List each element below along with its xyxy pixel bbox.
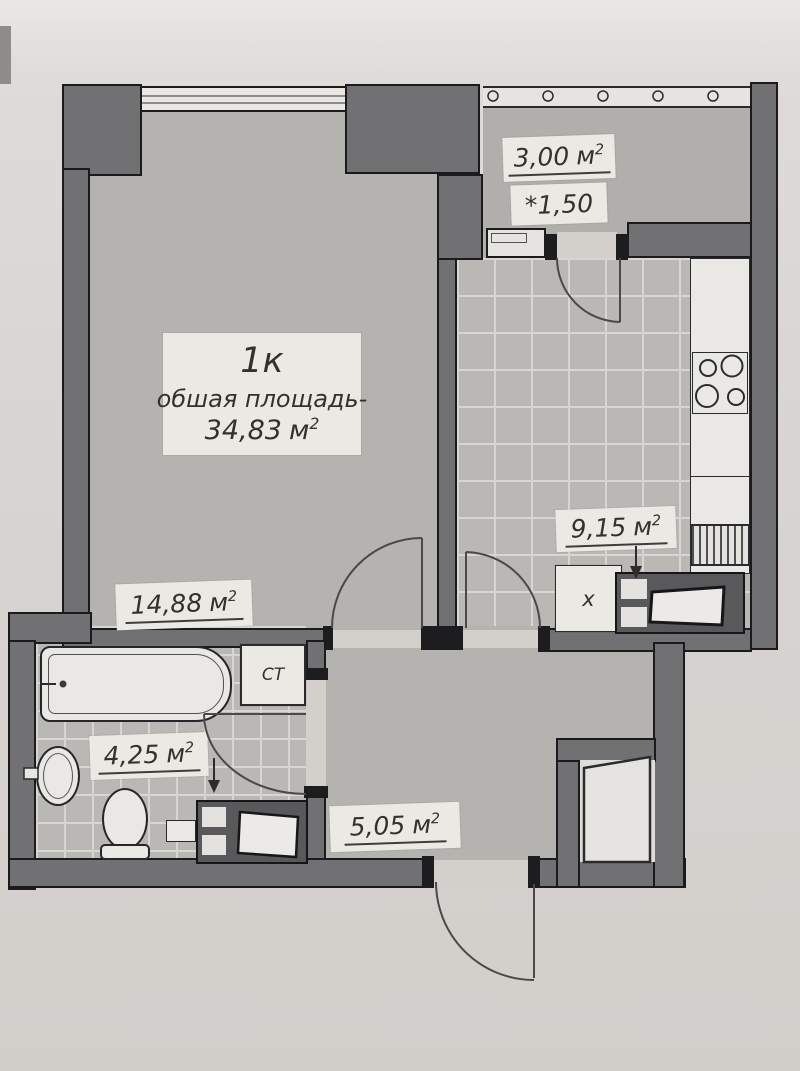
wall-left-exterior-lower — [8, 640, 36, 890]
door-jamb-center — [421, 626, 463, 650]
washbasin — [36, 746, 80, 806]
balcony-area-label: 3,00м2 — [502, 134, 615, 182]
closet-interior — [580, 760, 655, 862]
total-area-caption: обшая площадь- — [157, 384, 368, 414]
bathroom-door-threshold — [306, 670, 326, 796]
wall-pier-top-left — [62, 84, 142, 176]
washing-machine-box: СТ — [240, 644, 306, 706]
apartment-type-label: 1к — [240, 340, 283, 384]
wall-living-kitchen — [437, 258, 457, 650]
balcony-coefficient-label: *1,50 — [510, 182, 607, 225]
entrance-jamb-left — [422, 856, 434, 888]
wall-bathroom-right-lower — [306, 796, 326, 860]
balcony-door-jamb-right — [616, 234, 628, 260]
balcony-door-threshold — [557, 232, 617, 258]
entrance-jamb-right — [528, 856, 540, 888]
balcony-railing — [483, 86, 750, 108]
fridge-label: x — [582, 587, 594, 611]
kitchen-area-label: 9,15м2 — [555, 506, 676, 552]
wall-right-exterior — [750, 82, 778, 650]
wall-balcony-kitchen — [627, 222, 752, 258]
hallway-area-label: 5,05м2 — [329, 802, 461, 853]
photo-edge-artifact — [0, 26, 11, 84]
washing-machine-label: СТ — [262, 665, 284, 685]
balcony-window-sill — [486, 228, 546, 258]
wall-pier-top-center — [345, 84, 480, 174]
toilet-base — [100, 844, 150, 860]
cabinet-cell — [621, 607, 647, 627]
wall-closet-left — [556, 760, 580, 888]
fridge-box: x — [555, 565, 622, 632]
kitchen-door-threshold — [461, 630, 539, 648]
wall-closet-top — [556, 738, 656, 762]
bathroom-door-jamb-top — [304, 668, 328, 680]
wall-closet-right — [653, 642, 685, 888]
sink-drainer — [690, 524, 750, 566]
stove — [692, 352, 748, 414]
living-room-title-label: 1к обшая площадь- 34,83м2 — [163, 333, 361, 455]
toilet-bowl — [102, 788, 148, 850]
bathtub — [40, 646, 232, 722]
cabinet-cell — [202, 835, 226, 855]
floor-plan-photo: x СТ 1к обшая площадь- 34,83м2 14,88м2 3… — [0, 0, 800, 1071]
kitchen-door-jamb-right — [538, 626, 550, 652]
living-door-threshold — [333, 630, 421, 648]
kitchen-sink-cabinet — [615, 572, 745, 634]
bathroom-shelf — [166, 820, 196, 842]
balcony-door-jamb-left — [545, 234, 557, 260]
living-room-area-label: 14,88м2 — [115, 580, 253, 631]
total-area-value: 34,83м2 — [205, 414, 320, 448]
wall-left-exterior — [62, 168, 90, 648]
entrance-door-threshold — [434, 860, 528, 886]
living-window — [142, 86, 345, 112]
bathroom-sink-cabinet — [196, 800, 308, 864]
bathroom-area-label: 4,25м2 — [89, 732, 208, 780]
cabinet-cell — [621, 579, 647, 599]
cabinet-cell — [202, 807, 226, 827]
wall-living-kitchen-upper — [437, 174, 483, 260]
entrance-door — [436, 882, 534, 980]
kitchen-sink-top — [690, 476, 750, 526]
